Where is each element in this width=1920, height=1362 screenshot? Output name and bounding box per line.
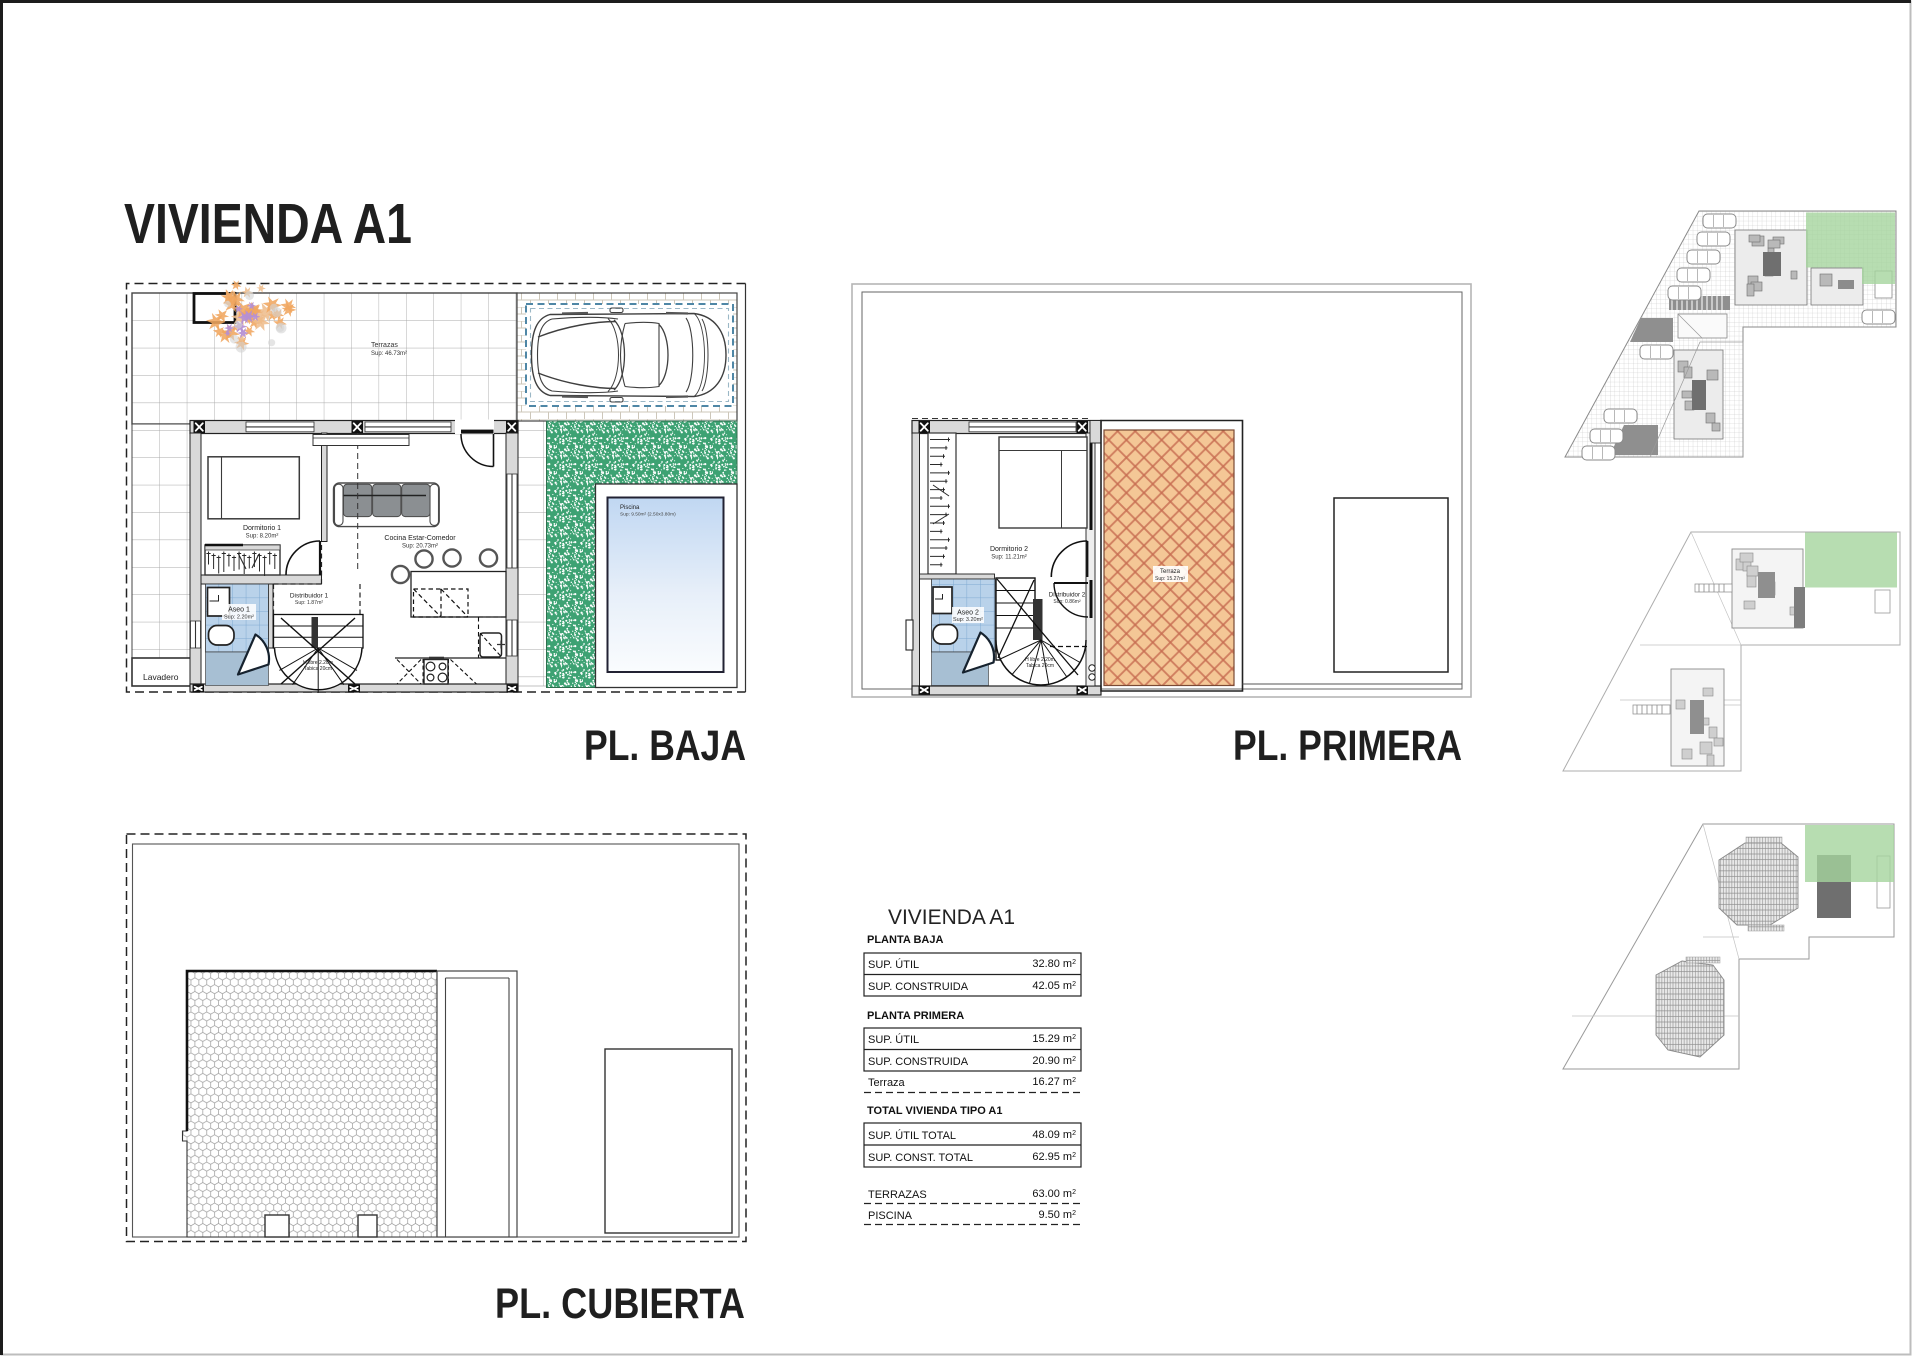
svg-text:Terraza: Terraza — [1160, 569, 1181, 575]
svg-text:Tabica 20cm: Tabica 20cm — [304, 666, 332, 672]
svg-text:Sup: 11.21m²: Sup: 11.21m² — [991, 555, 1027, 561]
svg-text:Dormitorio 1: Dormitorio 1 — [243, 525, 281, 532]
svg-text:Sup: 3.20m²: Sup: 3.20m² — [953, 617, 983, 623]
svg-text:Tabica 20cm: Tabica 20cm — [1026, 663, 1054, 669]
svg-text:PLANTA PRIMERA: PLANTA PRIMERA — [867, 1010, 964, 1022]
svg-text:62.95 m2: 62.95 m2 — [1032, 1151, 1076, 1163]
svg-text:9.50 m2: 9.50 m2 — [1038, 1209, 1076, 1221]
svg-text:Distribuidor 2: Distribuidor 2 — [1049, 592, 1086, 599]
svg-text:PL. CUBIERTA: PL. CUBIERTA — [495, 1280, 745, 1328]
svg-text:63.00 m2: 63.00 m2 — [1032, 1188, 1076, 1200]
svg-text:15.29 m2: 15.29 m2 — [1032, 1033, 1076, 1045]
svg-text:Sup: 1.87m²: Sup: 1.87m² — [295, 600, 324, 606]
svg-text:Sup: 46.73m²: Sup: 46.73m² — [371, 351, 407, 357]
svg-text:Sup: 20.73m²: Sup: 20.73m² — [402, 544, 438, 550]
svg-text:42.05 m2: 42.05 m2 — [1032, 980, 1076, 992]
svg-text:Aseo 2: Aseo 2 — [957, 610, 979, 617]
svg-text:PL. BAJA: PL. BAJA — [584, 722, 746, 770]
svg-text:Distribuidor 1: Distribuidor 1 — [290, 593, 329, 600]
svg-text:SUP. ÚTIL: SUP. ÚTIL — [868, 1033, 919, 1046]
svg-text:Sup: 9.50m² (2.50x3.80m): Sup: 9.50m² (2.50x3.80m) — [620, 512, 676, 518]
svg-text:PISCINA: PISCINA — [868, 1210, 913, 1222]
svg-text:Sup: 0.86m²: Sup: 0.86m² — [1053, 599, 1081, 605]
svg-text:Cocina Estar-Comedor: Cocina Estar-Comedor — [384, 535, 456, 542]
svg-text:Sup: 2.20m²: Sup: 2.20m² — [224, 615, 254, 621]
svg-text:TERRAZAS: TERRAZAS — [868, 1189, 927, 1201]
svg-text:Terraza: Terraza — [868, 1077, 906, 1089]
svg-text:VIVIENDA A1: VIVIENDA A1 — [888, 906, 1015, 929]
svg-text:Aseo 1: Aseo 1 — [228, 607, 250, 614]
svg-text:Dormitorio 2: Dormitorio 2 — [990, 546, 1028, 553]
svg-text:Piscina: Piscina — [620, 505, 640, 511]
svg-text:Sup: 15.27m²: Sup: 15.27m² — [1155, 576, 1185, 582]
svg-text:SUP. ÚTIL: SUP. ÚTIL — [868, 958, 919, 971]
svg-text:PLANTA BAJA: PLANTA BAJA — [867, 934, 943, 946]
svg-text:Sup: 8.20m²: Sup: 8.20m² — [246, 534, 279, 540]
svg-text:Terrazas: Terrazas — [371, 342, 398, 349]
svg-text:SUP. CONSTRUIDA: SUP. CONSTRUIDA — [868, 981, 969, 993]
svg-text:VIVIENDA A1: VIVIENDA A1 — [124, 192, 412, 256]
svg-text:TOTAL VIVIENDA TIPO A1: TOTAL VIVIENDA TIPO A1 — [867, 1105, 1002, 1117]
svg-text:48.09 m2: 48.09 m2 — [1032, 1129, 1076, 1141]
svg-text:SUP. CONST. TOTAL: SUP. CONST. TOTAL — [868, 1152, 973, 1164]
svg-text:SUP. CONSTRUIDA: SUP. CONSTRUIDA — [868, 1056, 969, 1068]
svg-text:Lavadero: Lavadero — [143, 672, 179, 682]
svg-text:16.27 m2: 16.27 m2 — [1032, 1076, 1076, 1088]
svg-text:32.80 m2: 32.80 m2 — [1032, 958, 1076, 970]
svg-text:PL. PRIMERA: PL. PRIMERA — [1233, 722, 1462, 770]
svg-text:20.90 m2: 20.90 m2 — [1032, 1055, 1076, 1067]
svg-text:SUP. ÚTIL TOTAL: SUP. ÚTIL TOTAL — [868, 1129, 956, 1142]
